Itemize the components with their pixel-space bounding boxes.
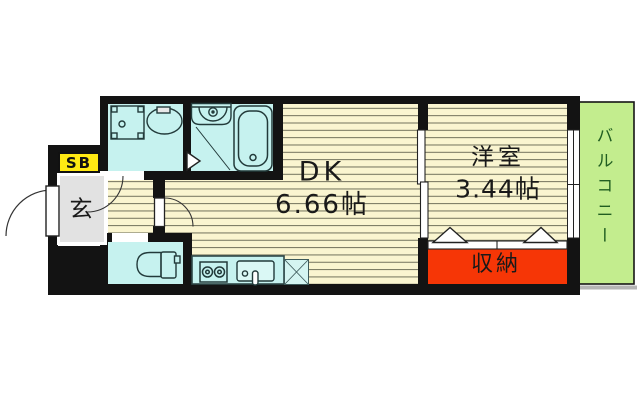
utility-room-floor [108, 104, 183, 171]
refrigerator-space [285, 260, 309, 285]
window-western-balcony [568, 130, 580, 238]
shoe-box: SB [58, 152, 100, 173]
wall-segment [100, 242, 108, 284]
wall-segment [183, 233, 192, 284]
bathroom-floor [191, 104, 273, 171]
wall-segment [153, 178, 165, 198]
floor-plan-canvas: DK 6.66帖 洋室 3.44帖 収納 玄 SB バルコニー [0, 0, 640, 400]
toilet-door-opening [112, 233, 148, 242]
balcony-shadow [579, 286, 637, 290]
western-room-label: 洋室 [471, 147, 525, 170]
entrance-label: 玄 [70, 199, 93, 222]
wall-segment [100, 96, 108, 173]
western-room-size: 3.44帖 [455, 177, 541, 202]
wall-segment [273, 96, 283, 180]
dk-room-label: DK [299, 159, 346, 186]
wall-segment [48, 145, 58, 187]
wall-segment [48, 284, 580, 295]
shoe-box-label: SB [66, 154, 92, 172]
kitchen-sink [237, 261, 274, 285]
storage-label: 収納 [471, 254, 521, 276]
balcony-label: バルコニー [591, 127, 616, 252]
wall-segment [48, 246, 103, 284]
dk-room-size: 6.66帖 [275, 192, 369, 218]
wall-segment [418, 96, 428, 130]
entrance-door [6, 186, 59, 236]
wall-segment [100, 96, 580, 104]
wall-segment [418, 238, 428, 284]
